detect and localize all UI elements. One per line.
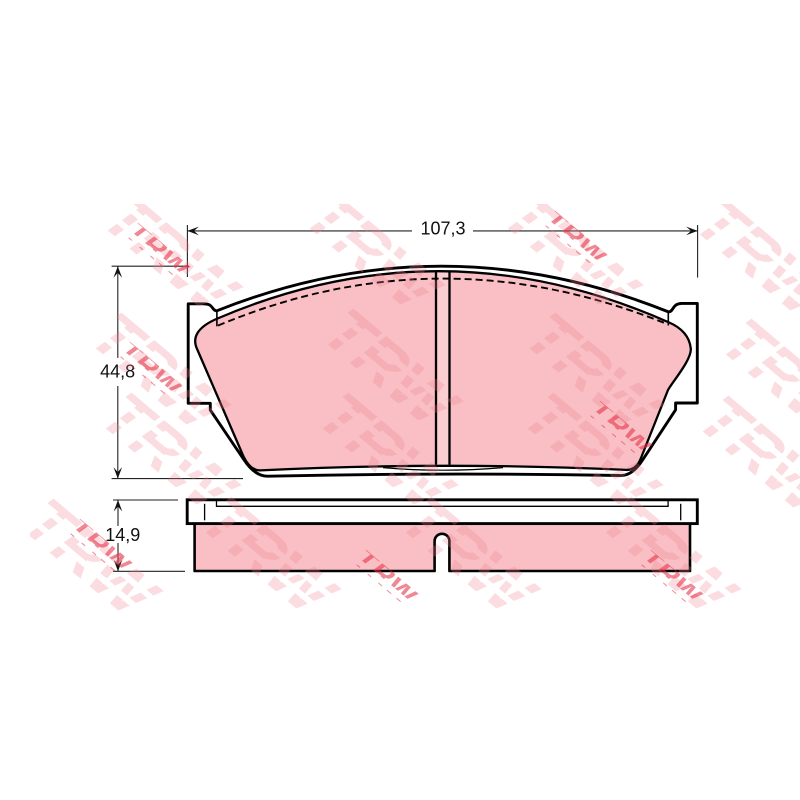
svg-text:14,9: 14,9	[105, 525, 140, 545]
svg-text:44,8: 44,8	[100, 361, 135, 381]
svg-text:107,3: 107,3	[420, 219, 465, 239]
